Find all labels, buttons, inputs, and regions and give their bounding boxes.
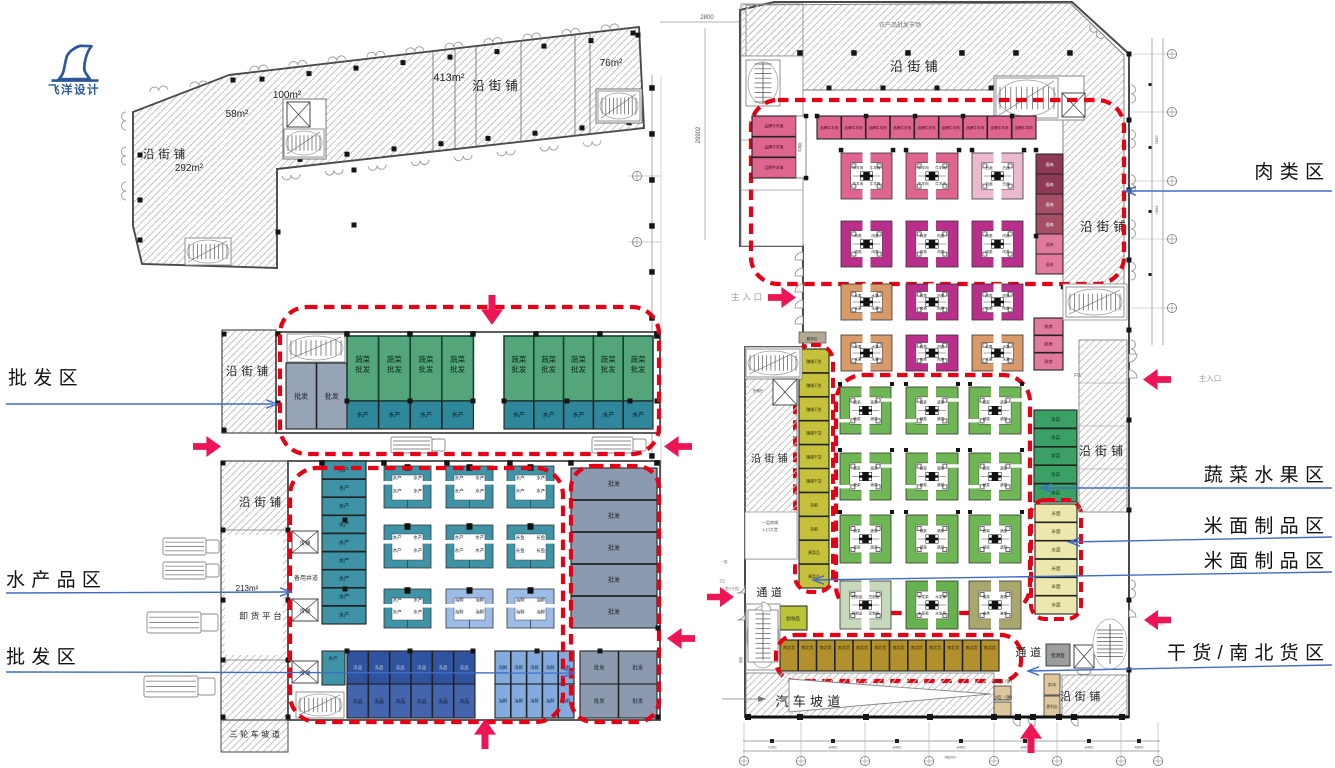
svg-text:卤肉: 卤肉 bbox=[1046, 181, 1054, 187]
svg-text:冻品: 冻品 bbox=[460, 664, 469, 671]
svg-text:冻品: 冻品 bbox=[438, 698, 448, 705]
svg-text:水产: 水产 bbox=[393, 534, 402, 541]
svg-text:水果: 水果 bbox=[854, 344, 862, 349]
svg-text:水果: 水果 bbox=[1002, 357, 1010, 362]
svg-text:腌腊干货: 腌腊干货 bbox=[806, 431, 821, 436]
svg-text:米面: 米面 bbox=[1051, 565, 1061, 572]
svg-text:水发菜: 水发菜 bbox=[935, 611, 946, 616]
svg-text:水果: 水果 bbox=[871, 357, 879, 362]
svg-text:冻品: 冻品 bbox=[395, 698, 405, 705]
svg-text:批发: 批发 bbox=[608, 480, 620, 488]
svg-text:冻品: 冻品 bbox=[375, 664, 384, 671]
svg-text:蔬菜: 蔬菜 bbox=[1000, 416, 1008, 421]
svg-text:南北货: 南北货 bbox=[984, 644, 996, 650]
svg-text:水产: 水产 bbox=[602, 411, 614, 419]
svg-text:8400: 8400 bbox=[893, 745, 903, 750]
svg-text:肉类: 肉类 bbox=[937, 249, 945, 254]
svg-text:通道: 通道 bbox=[756, 585, 785, 599]
svg-text:水果: 水果 bbox=[985, 344, 993, 349]
svg-text:肉类: 肉类 bbox=[920, 293, 928, 298]
svg-text:长鱼: 长鱼 bbox=[536, 547, 545, 554]
svg-text:蔬菜: 蔬菜 bbox=[983, 528, 991, 533]
svg-text:水产: 水产 bbox=[513, 411, 525, 419]
svg-text:冻品: 冻品 bbox=[417, 698, 427, 705]
svg-text:蔬菜: 蔬菜 bbox=[1000, 400, 1008, 405]
svg-text:肉类: 肉类 bbox=[1002, 233, 1010, 238]
svg-text:杂粮: 杂粮 bbox=[810, 502, 818, 507]
svg-text:蔬菜: 蔬菜 bbox=[870, 528, 878, 533]
svg-text:便利店: 便利店 bbox=[1046, 704, 1058, 709]
svg-text:海鲜: 海鲜 bbox=[455, 609, 464, 616]
svg-text:水产: 水产 bbox=[393, 474, 402, 481]
svg-text:肉类: 肉类 bbox=[985, 293, 993, 298]
svg-text:水产: 水产 bbox=[388, 411, 400, 419]
svg-text:批发: 批发 bbox=[632, 663, 643, 671]
svg-text:水果: 水果 bbox=[854, 306, 862, 311]
svg-text:海鲜: 海鲜 bbox=[546, 698, 555, 705]
svg-text:品牌牛羊肉: 品牌牛羊肉 bbox=[765, 124, 784, 129]
svg-text:净菜: 净菜 bbox=[1051, 471, 1061, 478]
svg-text:冻品: 冻品 bbox=[396, 664, 405, 671]
svg-text:品牌牛羊肉: 品牌牛羊肉 bbox=[845, 125, 863, 130]
svg-text:292m²: 292m² bbox=[175, 163, 204, 174]
svg-text:干货/南北货区: 干货/南北货区 bbox=[1167, 642, 1330, 664]
svg-text:批发: 批发 bbox=[632, 697, 643, 705]
svg-text:熟食: 熟食 bbox=[1044, 323, 1053, 330]
svg-text:水产: 水产 bbox=[339, 611, 350, 619]
svg-text:沿街铺: 沿街铺 bbox=[1060, 689, 1104, 703]
svg-text:肉类: 肉类 bbox=[937, 233, 945, 238]
svg-text:水产: 水产 bbox=[475, 547, 484, 554]
svg-text:肉类: 肉类 bbox=[985, 233, 993, 238]
svg-text:蔬菜水果区: 蔬菜水果区 bbox=[1204, 464, 1331, 486]
svg-text:沿街铺: 沿街铺 bbox=[890, 59, 942, 74]
svg-text:南北货: 南北货 bbox=[783, 644, 795, 650]
svg-text:品牌牛羊肉: 品牌牛羊肉 bbox=[765, 144, 784, 149]
svg-text:水发菜: 水发菜 bbox=[935, 594, 946, 599]
svg-text:卤肉: 卤肉 bbox=[1046, 201, 1054, 207]
svg-text:三轮车坡道: 三轮车坡道 bbox=[230, 729, 283, 739]
svg-text:蔬菜: 蔬菜 bbox=[450, 354, 465, 364]
svg-text:肉类: 肉类 bbox=[1002, 293, 1010, 298]
svg-text:净菜: 净菜 bbox=[1051, 416, 1061, 423]
svg-text:海鲜: 海鲜 bbox=[499, 698, 508, 705]
svg-text:肉类: 肉类 bbox=[1002, 249, 1010, 254]
svg-text:肉类: 肉类 bbox=[920, 344, 928, 349]
svg-text:水产: 水产 bbox=[328, 655, 338, 662]
svg-text:熟食: 熟食 bbox=[1044, 341, 1053, 348]
svg-text:7200: 7200 bbox=[768, 745, 778, 750]
svg-text:豆制品: 豆制品 bbox=[869, 611, 880, 616]
svg-text:蔬菜: 蔬菜 bbox=[870, 400, 878, 405]
svg-text:批发: 批发 bbox=[594, 663, 605, 671]
svg-text:海鲜: 海鲜 bbox=[536, 597, 545, 604]
svg-text:肉类: 肉类 bbox=[937, 357, 945, 362]
svg-text:一层商铺: 一层商铺 bbox=[762, 519, 778, 525]
svg-text:水果: 水果 bbox=[871, 293, 879, 298]
svg-text:4800: 4800 bbox=[1135, 745, 1145, 750]
svg-text:水产: 水产 bbox=[455, 534, 464, 541]
svg-text:批发: 批发 bbox=[608, 512, 620, 520]
svg-text:消防: 消防 bbox=[738, 656, 743, 663]
svg-text:南北货: 南北货 bbox=[820, 644, 832, 650]
svg-text:8400: 8400 bbox=[829, 745, 839, 750]
svg-text:蔬菜: 蔬菜 bbox=[631, 354, 646, 364]
svg-text:牛羊肉: 牛羊肉 bbox=[918, 165, 929, 170]
svg-text:冻品: 冻品 bbox=[353, 698, 363, 705]
svg-text:批发: 批发 bbox=[294, 391, 308, 400]
svg-text:水产: 水产 bbox=[339, 484, 350, 492]
svg-text:货梯厅: 货梯厅 bbox=[753, 388, 764, 393]
svg-text:净菜: 净菜 bbox=[1051, 489, 1061, 496]
svg-text:水果: 水果 bbox=[1002, 344, 1010, 349]
svg-text:海鲜: 海鲜 bbox=[514, 698, 523, 705]
svg-text:水产: 水产 bbox=[413, 534, 422, 541]
svg-text:肉类: 肉类 bbox=[985, 249, 993, 254]
svg-text:卫生: 卫生 bbox=[719, 578, 726, 583]
svg-text:杂粮: 杂粮 bbox=[810, 526, 818, 531]
svg-text:海鲜: 海鲜 bbox=[499, 664, 508, 671]
svg-text:蔬菜: 蔬菜 bbox=[920, 482, 928, 487]
svg-text:沿街铺: 沿街铺 bbox=[472, 79, 522, 93]
svg-text:水产: 水产 bbox=[413, 609, 422, 616]
svg-text:海鲜: 海鲜 bbox=[514, 664, 523, 671]
svg-text:水产: 水产 bbox=[475, 474, 484, 481]
svg-text:8400: 8400 bbox=[957, 745, 967, 750]
svg-text:卤肉: 卤肉 bbox=[1046, 161, 1054, 167]
svg-text:蔬菜: 蔬菜 bbox=[983, 400, 991, 405]
svg-text:品牌牛羊肉: 品牌牛羊肉 bbox=[869, 125, 887, 130]
svg-text:沿街铺: 沿街铺 bbox=[143, 147, 189, 161]
svg-text:水果: 水果 bbox=[854, 293, 862, 298]
svg-text:净菜: 净菜 bbox=[1051, 453, 1061, 460]
svg-text:413m²: 413m² bbox=[433, 72, 465, 84]
svg-text:批发: 批发 bbox=[608, 576, 620, 584]
svg-text:水产: 水产 bbox=[413, 488, 422, 495]
svg-text:长鱼: 长鱼 bbox=[536, 534, 545, 541]
svg-text:肉类: 肉类 bbox=[937, 306, 945, 311]
svg-text:水果: 水果 bbox=[854, 357, 862, 362]
svg-text:通道: 通道 bbox=[1015, 645, 1044, 659]
svg-text:水产: 水产 bbox=[572, 411, 584, 419]
svg-text:水产: 水产 bbox=[393, 547, 402, 554]
svg-text:牛羊肉: 牛羊肉 bbox=[853, 181, 864, 186]
svg-text:水产: 水产 bbox=[339, 538, 350, 546]
svg-text:白卤: 白卤 bbox=[1002, 181, 1010, 186]
svg-text:冻品: 冻品 bbox=[417, 664, 426, 671]
svg-text:禽类: 禽类 bbox=[983, 611, 991, 616]
svg-text:批发: 批发 bbox=[608, 544, 620, 552]
svg-text:水产: 水产 bbox=[339, 593, 350, 601]
svg-text:品牌牛羊肉: 品牌牛羊肉 bbox=[918, 125, 936, 130]
svg-text:水产: 水产 bbox=[516, 488, 525, 495]
svg-text:米面制品区: 米面制品区 bbox=[1204, 550, 1331, 572]
svg-text:海鲜: 海鲜 bbox=[530, 664, 539, 671]
svg-text:海鲜: 海鲜 bbox=[530, 698, 539, 705]
svg-text:肉类: 肉类 bbox=[1002, 306, 1010, 311]
svg-text:蔬菜: 蔬菜 bbox=[853, 528, 861, 533]
svg-text:批发: 批发 bbox=[594, 697, 605, 705]
svg-text:检测室: 检测室 bbox=[1051, 652, 1065, 659]
svg-text:腌腊干货: 腌腊干货 bbox=[806, 383, 821, 388]
svg-text:货梯: 货梯 bbox=[299, 539, 311, 547]
svg-text:海鲜: 海鲜 bbox=[455, 597, 464, 604]
svg-text:蔬菜: 蔬菜 bbox=[937, 545, 945, 550]
svg-text:58m²: 58m² bbox=[226, 109, 249, 120]
svg-text:牛羊肉: 牛羊肉 bbox=[853, 165, 864, 170]
svg-text:蔬菜: 蔬菜 bbox=[1000, 482, 1008, 487]
svg-text:7800: 7800 bbox=[1154, 205, 1159, 215]
svg-text:冻品: 冻品 bbox=[459, 698, 469, 705]
svg-text:蔬菜: 蔬菜 bbox=[853, 482, 861, 487]
svg-text:批发: 批发 bbox=[541, 364, 556, 374]
svg-text:牛羊肉: 牛羊肉 bbox=[935, 181, 946, 186]
svg-text:批发: 批发 bbox=[601, 364, 616, 374]
svg-text:水产: 水产 bbox=[393, 597, 402, 604]
svg-text:品牌牛羊肉: 品牌牛羊肉 bbox=[820, 125, 838, 130]
svg-text:蔬菜: 蔬菜 bbox=[937, 528, 945, 533]
svg-text:肉类: 肉类 bbox=[920, 357, 928, 362]
svg-text:品牌牛羊肉: 品牌牛羊肉 bbox=[1015, 125, 1033, 130]
svg-text:小吃（饼）: 小吃（饼） bbox=[993, 694, 1015, 701]
svg-text:农产品批发市场: 农产品批发市场 bbox=[879, 21, 921, 29]
svg-text:肉类: 肉类 bbox=[985, 306, 993, 311]
svg-text:水产: 水产 bbox=[475, 488, 484, 495]
svg-text:批发: 批发 bbox=[450, 364, 465, 374]
svg-text:腌腊干货: 腌腊干货 bbox=[806, 455, 821, 460]
svg-text:牛羊肉: 牛羊肉 bbox=[935, 165, 946, 170]
svg-text:南北货: 南北货 bbox=[929, 644, 941, 650]
svg-text:米面: 米面 bbox=[1051, 528, 1061, 535]
svg-text:白卤: 白卤 bbox=[1002, 165, 1010, 170]
svg-text:南北货: 南北货 bbox=[911, 644, 923, 650]
svg-text:批发区: 批发区 bbox=[6, 646, 82, 668]
svg-text:豆制品: 豆制品 bbox=[852, 594, 863, 599]
svg-text:100m²: 100m² bbox=[273, 90, 302, 101]
svg-text:南北货: 南北货 bbox=[801, 644, 813, 650]
svg-text:海鲜: 海鲜 bbox=[516, 597, 525, 604]
svg-text:8400: 8400 bbox=[1085, 745, 1095, 750]
svg-text:水果: 水果 bbox=[871, 344, 879, 349]
svg-text:肉类: 肉类 bbox=[937, 293, 945, 298]
svg-text:蔬菜: 蔬菜 bbox=[571, 354, 586, 364]
svg-text:品牌牛羊肉: 品牌牛羊肉 bbox=[942, 125, 960, 130]
svg-text:蔬菜: 蔬菜 bbox=[853, 400, 861, 405]
svg-text:水果: 水果 bbox=[871, 306, 879, 311]
svg-text:批发: 批发 bbox=[419, 364, 434, 374]
svg-text:沿街铺: 沿街铺 bbox=[226, 364, 272, 378]
svg-text:肉类: 肉类 bbox=[937, 344, 945, 349]
svg-text:水产: 水产 bbox=[357, 411, 369, 419]
svg-text:蔬菜: 蔬菜 bbox=[870, 416, 878, 421]
svg-text:主入口: 主入口 bbox=[731, 292, 765, 302]
svg-text:蔬菜: 蔬菜 bbox=[1000, 545, 1008, 550]
svg-text:水产: 水产 bbox=[536, 474, 545, 481]
svg-text:白卤: 白卤 bbox=[985, 165, 993, 170]
svg-text:水产: 水产 bbox=[420, 411, 432, 419]
svg-text:入口大堂: 入口大堂 bbox=[762, 526, 778, 532]
svg-text:蔬菜: 蔬菜 bbox=[937, 416, 945, 421]
svg-text:豆制品: 豆制品 bbox=[852, 611, 863, 616]
svg-text:沿街铺: 沿街铺 bbox=[239, 495, 285, 509]
svg-text:主入口: 主入口 bbox=[1199, 373, 1222, 383]
svg-text:蔬菜: 蔬菜 bbox=[853, 416, 861, 421]
svg-text:熟食: 熟食 bbox=[1044, 358, 1053, 365]
svg-text:蔬菜: 蔬菜 bbox=[983, 545, 991, 550]
svg-text:小吃（饼）: 小吃（饼） bbox=[993, 678, 1015, 685]
svg-text:水产品区: 水产品区 bbox=[6, 569, 107, 591]
svg-text:备用井道: 备用井道 bbox=[294, 574, 318, 582]
svg-text:水产: 水产 bbox=[339, 575, 350, 583]
svg-text:批发: 批发 bbox=[511, 364, 526, 374]
svg-text:水产: 水产 bbox=[452, 411, 464, 419]
svg-text:腌腊干货: 腌腊干货 bbox=[806, 407, 821, 412]
svg-text:蔬菜: 蔬菜 bbox=[920, 528, 928, 533]
svg-text:腌腊干货: 腌腊干货 bbox=[806, 359, 821, 364]
svg-text:肉类: 肉类 bbox=[854, 233, 862, 238]
svg-text:一楼: 一楼 bbox=[721, 559, 728, 564]
svg-text:批发: 批发 bbox=[608, 608, 620, 616]
svg-text:南北货: 南北货 bbox=[874, 644, 886, 650]
svg-text:南北货: 南北货 bbox=[947, 644, 959, 650]
svg-text:蔬菜: 蔬菜 bbox=[920, 466, 928, 471]
svg-text:腌腊干货: 腌腊干货 bbox=[806, 479, 821, 484]
svg-text:南北货: 南北货 bbox=[893, 644, 905, 650]
svg-text:海鲜: 海鲜 bbox=[475, 609, 484, 616]
svg-text:水发菜: 水发菜 bbox=[918, 611, 929, 616]
svg-text:蔬菜: 蔬菜 bbox=[511, 354, 526, 364]
svg-text:蔬菜: 蔬菜 bbox=[1000, 466, 1008, 471]
svg-text:48200: 48200 bbox=[944, 755, 956, 760]
svg-text:水产: 水产 bbox=[455, 488, 464, 495]
svg-text:肉类: 肉类 bbox=[920, 233, 928, 238]
svg-text:水产: 水产 bbox=[413, 474, 422, 481]
svg-text:沿街铺: 沿街铺 bbox=[751, 452, 791, 465]
svg-text:水产: 水产 bbox=[543, 411, 555, 419]
svg-text:水产: 水产 bbox=[455, 474, 464, 481]
svg-text:卸货平台: 卸货平台 bbox=[239, 611, 284, 621]
svg-text:水产: 水产 bbox=[455, 547, 464, 554]
svg-text:蔬菜: 蔬菜 bbox=[937, 400, 945, 405]
svg-text:蔬菜: 蔬菜 bbox=[419, 354, 434, 364]
svg-text:2800: 2800 bbox=[700, 15, 714, 21]
svg-text:蔬菜: 蔬菜 bbox=[920, 400, 928, 405]
svg-text:肉类区: 肉类区 bbox=[1254, 161, 1330, 183]
svg-text:服务位: 服务位 bbox=[807, 336, 818, 341]
svg-text:水发菜: 水发菜 bbox=[918, 594, 929, 599]
svg-text:水产: 水产 bbox=[632, 411, 644, 419]
svg-text:禽类: 禽类 bbox=[1000, 594, 1008, 599]
svg-text:蔬菜: 蔬菜 bbox=[355, 354, 370, 364]
svg-text:海鲜: 海鲜 bbox=[475, 597, 484, 604]
svg-text:沿街铺: 沿街铺 bbox=[1079, 444, 1127, 458]
svg-text:肉类: 肉类 bbox=[920, 306, 928, 311]
svg-text:水产: 水产 bbox=[339, 502, 350, 510]
svg-text:卤肉: 卤肉 bbox=[1046, 221, 1054, 227]
svg-text:蔬菜: 蔬菜 bbox=[541, 354, 556, 364]
svg-text:牛羊肉: 牛羊肉 bbox=[870, 165, 881, 170]
svg-text:蔬菜: 蔬菜 bbox=[387, 354, 402, 364]
svg-text:蔬菜: 蔬菜 bbox=[937, 466, 945, 471]
svg-text:牛羊肉: 牛羊肉 bbox=[918, 181, 929, 186]
svg-text:水产: 水产 bbox=[413, 547, 422, 554]
svg-text:冻品: 冻品 bbox=[374, 698, 384, 705]
svg-text:水产: 水产 bbox=[475, 534, 484, 541]
svg-text:南北货: 南北货 bbox=[966, 644, 978, 650]
svg-text:7800: 7800 bbox=[1154, 135, 1159, 145]
svg-text:卖冰: 卖冰 bbox=[1048, 681, 1057, 688]
svg-text:肉类: 肉类 bbox=[854, 249, 862, 254]
svg-text:米面制品区: 米面制品区 bbox=[1204, 515, 1331, 537]
svg-text:净菜: 净菜 bbox=[1051, 434, 1061, 441]
svg-text:米面: 米面 bbox=[1051, 510, 1061, 517]
svg-text:水产: 水产 bbox=[516, 474, 525, 481]
svg-text:冻品: 冻品 bbox=[353, 664, 362, 671]
svg-text:米面: 米面 bbox=[1051, 601, 1061, 608]
svg-text:米面: 米面 bbox=[1051, 583, 1061, 590]
svg-text:品牌牛羊肉: 品牌牛羊肉 bbox=[991, 125, 1009, 130]
svg-text:牛羊肉: 牛羊肉 bbox=[870, 181, 881, 186]
svg-text:蔬菜: 蔬菜 bbox=[601, 354, 616, 364]
svg-text:水产: 水产 bbox=[339, 557, 350, 565]
svg-text:肉类: 肉类 bbox=[871, 233, 879, 238]
svg-text:蔬菜: 蔬菜 bbox=[853, 545, 861, 550]
svg-text:批发: 批发 bbox=[355, 364, 370, 374]
svg-text:批发: 批发 bbox=[325, 391, 339, 400]
svg-text:76m²: 76m² bbox=[600, 58, 623, 69]
svg-text:蔬菜: 蔬菜 bbox=[920, 545, 928, 550]
svg-text:批发区: 批发区 bbox=[8, 367, 84, 389]
svg-text:蔬菜: 蔬菜 bbox=[870, 545, 878, 550]
svg-text:禽类: 禽类 bbox=[1000, 611, 1008, 616]
svg-text:豆制品: 豆制品 bbox=[869, 594, 880, 599]
svg-text:批发: 批发 bbox=[631, 364, 646, 374]
svg-text:牛肉区: 牛肉区 bbox=[797, 141, 802, 151]
svg-text:批发: 批发 bbox=[571, 364, 586, 374]
svg-text:长鱼: 长鱼 bbox=[516, 547, 525, 554]
svg-text:水产: 水产 bbox=[393, 488, 402, 495]
svg-text:货梯: 货梯 bbox=[299, 607, 311, 615]
svg-text:蔬菜: 蔬菜 bbox=[920, 416, 928, 421]
svg-text:品牌牛羊肉: 品牌牛羊肉 bbox=[765, 165, 784, 170]
svg-text:飞洋设计: 飞洋设计 bbox=[48, 83, 100, 97]
svg-text:蔬菜: 蔬菜 bbox=[937, 482, 945, 487]
svg-text:酱菜品: 酱菜品 bbox=[808, 550, 820, 555]
svg-text:长鱼: 长鱼 bbox=[516, 534, 525, 541]
svg-text:品牌牛羊肉: 品牌牛羊肉 bbox=[893, 125, 911, 130]
svg-text:蔬菜: 蔬菜 bbox=[853, 466, 861, 471]
svg-text:蔬菜: 蔬菜 bbox=[983, 482, 991, 487]
svg-text:南北货: 南北货 bbox=[856, 644, 868, 650]
svg-text:冻品: 冻品 bbox=[439, 664, 448, 671]
svg-text:肉类: 肉类 bbox=[920, 249, 928, 254]
svg-text:水果: 水果 bbox=[985, 357, 993, 362]
svg-text:水产: 水产 bbox=[413, 597, 422, 604]
svg-text:汽车坡道: 汽车坡道 bbox=[775, 694, 844, 709]
svg-text:蔬菜: 蔬菜 bbox=[1000, 528, 1008, 533]
svg-text:海鲜: 海鲜 bbox=[516, 609, 525, 616]
svg-text:卤肉: 卤肉 bbox=[1046, 241, 1054, 247]
svg-text:29902: 29902 bbox=[696, 126, 702, 143]
svg-text:白卤: 白卤 bbox=[985, 181, 993, 186]
svg-text:肉类: 肉类 bbox=[871, 249, 879, 254]
svg-text:批发: 批发 bbox=[387, 364, 402, 374]
svg-text:卤肉: 卤肉 bbox=[1046, 261, 1054, 267]
svg-text:南北货: 南北货 bbox=[838, 644, 850, 650]
svg-text:水产: 水产 bbox=[393, 609, 402, 616]
svg-text:蔬菜: 蔬菜 bbox=[870, 466, 878, 471]
svg-text:海鲜: 海鲜 bbox=[546, 664, 555, 671]
